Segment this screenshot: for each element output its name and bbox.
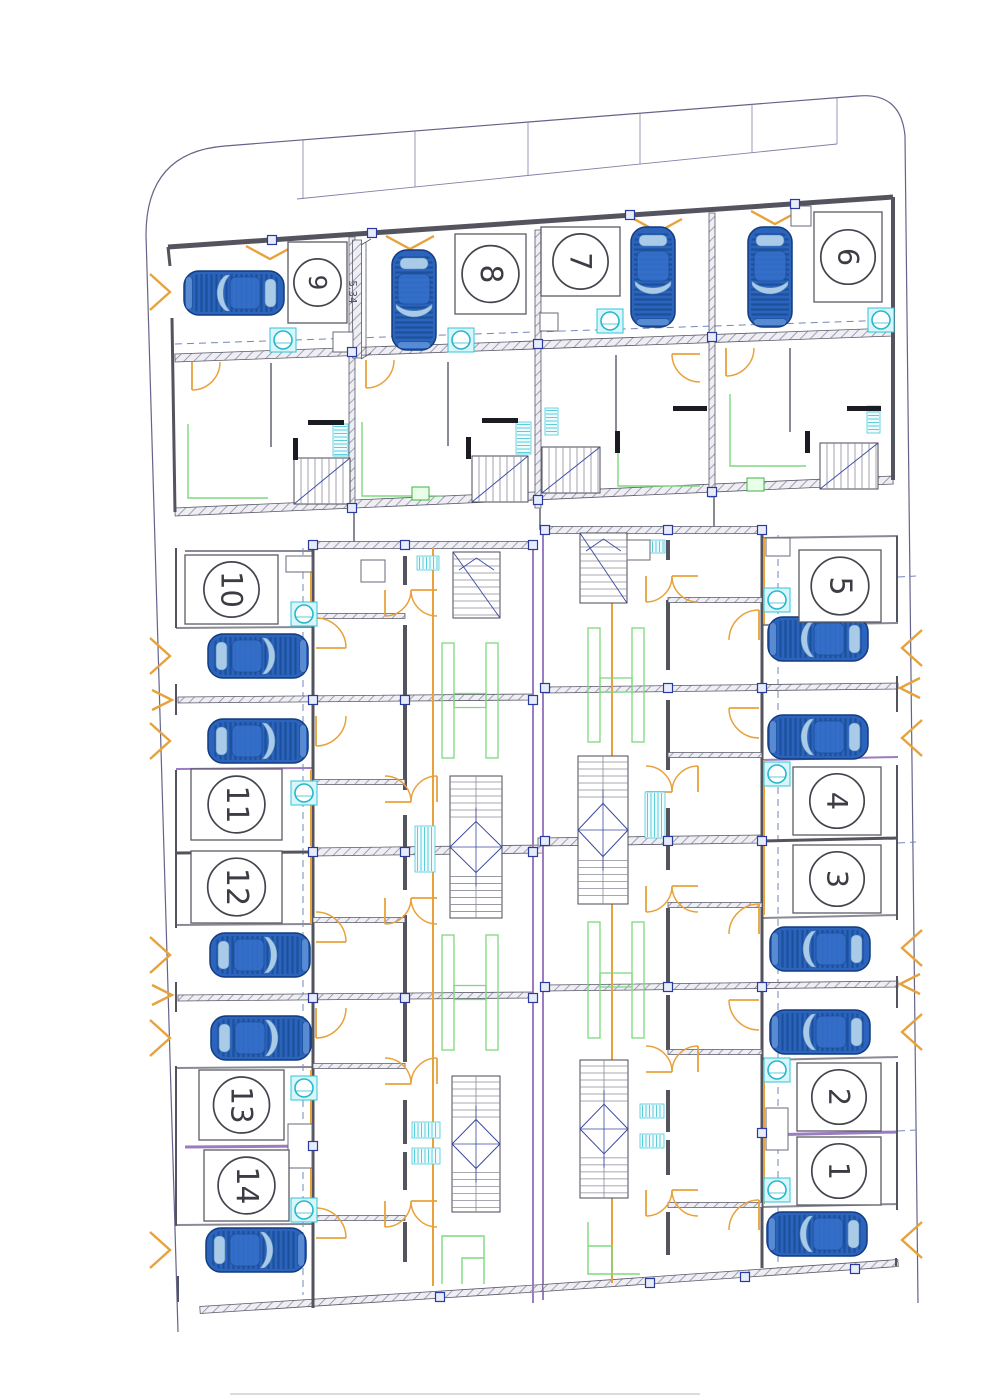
unit-number: 14 [229,1167,264,1205]
door-swing [729,1000,759,1030]
column-icon [268,236,277,245]
door-arc [672,766,698,792]
column-icon [309,696,318,705]
door-swing [729,904,759,934]
column-icon [791,200,800,209]
hatched-wall [200,1285,543,1314]
door-arc [316,1008,346,1038]
column-icon [541,837,550,846]
door-swing [316,1008,346,1038]
column-icon [309,848,318,857]
wardrobe-bar [588,628,600,742]
hatched-wall [535,230,541,508]
parking-entry-chevron [902,1222,922,1258]
column-icon [348,504,357,513]
unit-number: 12 [219,868,254,906]
car-icon [768,617,868,661]
car-icon [767,1212,867,1256]
door-arc [385,590,411,616]
vent-ring [768,765,786,783]
dashed-guide [898,1130,916,1131]
door-swing [729,610,759,640]
storage-box [766,538,790,556]
door-swing [316,1208,346,1238]
unit-number: 8 [473,265,508,284]
parking-entry-chevron [246,246,294,259]
door-swing [366,360,394,388]
column-icon [664,837,673,846]
wall [762,915,898,918]
door-arc [385,1058,411,1084]
door-swing [672,886,698,912]
door-arc [316,618,346,648]
floor-plan-svg: 1234567891011121314 5.34 [0,0,990,1400]
unit-number: 2 [822,1088,856,1106]
parking-entry-chevron [902,630,922,666]
door-arc [385,1201,411,1227]
column-icon [529,994,538,1003]
stairs-layer [294,443,878,1212]
staircase [580,1060,628,1198]
column-icon [708,333,717,342]
parking-entry-chevron [150,1020,170,1056]
staircase [294,458,350,504]
storage-box [766,1108,788,1150]
column-icon [708,488,717,497]
unit-number: 7 [564,252,598,270]
bathroom-fixture [482,418,518,423]
door-arc [729,1000,759,1030]
column-icon [758,1129,767,1138]
parking-entry-chevron [150,1232,170,1268]
hatched-wall [668,598,762,603]
column-icon [309,1142,318,1151]
grille-box [545,408,558,435]
vent-circle-icon [448,328,474,352]
car-icon [770,927,870,971]
hatched-wall [543,1260,898,1292]
car-icon [748,227,792,327]
parking-entry-chevron [152,985,172,1005]
door-arc [729,904,759,934]
door-swing [385,1058,411,1084]
unit-number: 3 [820,870,854,888]
door-swing [726,348,754,376]
column-icon [368,229,377,238]
vent-ring [768,1061,786,1079]
column-icon [741,1273,750,1282]
bathroom-fixture [293,438,298,460]
bathroom-fixture [308,420,344,425]
unit-label: 4 [793,767,881,835]
car-icon [206,1228,306,1272]
wall [762,838,898,841]
vent-ring [452,331,470,349]
wall [176,1067,313,1068]
grille-box [645,792,665,838]
unit-label: 8 [455,234,526,314]
floor-plan-canvas: 1234567891011121314 5.34 [0,0,990,1400]
wardrobe-h-shape [588,628,644,742]
column-icon [541,526,550,535]
kitchen-counter-line [588,1222,640,1274]
door-arc [726,348,754,376]
storage-box [361,560,385,582]
wardrobe-h-shape [588,922,644,1038]
parking-entry-chevron [902,1014,922,1050]
car-icon [768,715,868,759]
dimension-label: 5.34 [346,280,358,304]
car-icon [211,1016,311,1060]
kitchen-counter-line [588,1246,612,1274]
hatched-wall [313,918,405,923]
door-arc [729,610,759,640]
unit-label: 11 [191,769,282,840]
vent-circle-icon [291,602,317,626]
bathroom-fixture [847,406,881,411]
hatched-wall [313,1064,405,1069]
staircase [542,447,600,493]
column-icon [401,696,410,705]
green-label-box [747,478,764,491]
grille-icon [412,1122,440,1138]
vent-circle-icon [868,308,894,332]
wall [172,318,175,512]
vent-circle-icon [270,328,296,352]
vent-ring [295,784,313,802]
hatched-wall [313,1216,405,1221]
unit-label: 2 [797,1063,881,1131]
vent-ring [768,1181,786,1199]
door-arc [672,886,698,912]
vent-ring [768,591,786,609]
column-icon [664,526,673,535]
car-icon [184,271,284,315]
vent-circle-icon [764,762,790,786]
hatched-wall [545,527,762,534]
column-icon [401,994,410,1003]
unit-label: 6 [814,212,882,302]
column-icon [401,541,410,550]
unit-label: 14 [204,1150,289,1221]
grille-icon [412,1148,440,1164]
parking-entry-chevron [900,974,920,994]
bathroom-fixture [805,431,810,453]
vent-ring [601,312,619,330]
bathroom-fixture [673,406,707,411]
unit-number: 1 [822,1162,856,1180]
hatched-wall [545,981,898,991]
staircase [472,456,528,502]
column-icon [436,1293,445,1302]
storage-box [540,313,558,331]
wardrobe-bar [588,922,600,1038]
parking-entry-chevron [150,274,170,310]
unit-number: 5 [823,576,858,595]
wall [168,247,170,266]
door-arc [192,362,220,390]
door-swing [192,362,220,390]
column-icon [646,1279,655,1288]
staircase [452,1076,500,1212]
wall [176,627,313,628]
unit-label: 3 [793,845,881,913]
unit-label: 12 [191,851,282,923]
column-icon [529,541,538,550]
column-icon [309,994,318,1003]
staircase [580,533,627,603]
column-icon [529,696,538,705]
bathroom-fixture [466,437,471,459]
hatched-wall [668,753,762,758]
grille-icon [417,556,439,570]
grille-icon [645,792,665,838]
column-icon [534,340,543,349]
unit-number: 13 [225,1086,259,1123]
door-swing [672,766,698,792]
door-arc [316,1208,346,1238]
column-icon [534,496,543,505]
storage-box [627,540,650,560]
parking-entry-chevron [152,690,172,710]
kitchen-counter-line [462,1258,484,1284]
vent-circle-icon [764,588,790,612]
vent-ring [872,311,890,329]
grille-icon [516,422,531,454]
door-swing [385,1201,411,1227]
unit-number: 4 [820,792,854,810]
column-icon [758,684,767,693]
vent-ring [274,331,292,349]
car-icon [770,1010,870,1054]
column-icon [758,837,767,846]
hatched-wall [545,683,898,693]
sidewalk-edge [297,144,837,199]
column-icon [758,983,767,992]
vent-ring [295,1079,313,1097]
car-icon [210,933,310,977]
staircase [820,443,878,489]
kitchen-counter-line [618,440,700,486]
wall [176,1224,313,1225]
unit-number: 10 [215,571,249,608]
grille-box [415,826,435,872]
column-icon [626,211,635,220]
vent-circle-icon [291,781,317,805]
grille-icon [545,408,558,435]
car-icon [392,250,436,350]
hatched-wall [313,780,405,785]
door-arc [672,354,700,382]
column-icon [529,848,538,857]
storage-box [286,556,312,572]
grille-icon [640,1134,664,1148]
grille-icon [415,826,435,872]
staircase [578,756,628,904]
unit-number: 9 [303,275,332,291]
column-icon [851,1265,860,1274]
vent-circle-icon [764,1058,790,1082]
vent-circle-icon [291,1198,317,1222]
parking-entry-chevron [150,638,170,674]
car-icon [208,634,308,678]
door-swing [672,354,700,382]
column-icon [541,684,550,693]
column-icon [348,348,357,357]
bathroom-fixture [615,431,620,453]
kitchen-counter-line [362,422,442,496]
door-arc [729,708,759,738]
parking-entry-chevron [900,678,920,698]
grille-icon [333,424,348,456]
kitchen-counter-line [188,424,268,498]
green-label-box [412,487,429,500]
unit-label: 5 [799,550,881,622]
door-swing [316,618,346,648]
unit-label: 1 [797,1137,881,1205]
vent-circle-icon [597,309,623,333]
unit-label: 9 [288,242,347,323]
vent-ring [295,605,313,623]
column-icon [758,526,767,535]
column-icon [541,983,550,992]
column-icon [664,983,673,992]
hatched-wall [709,213,715,497]
staircase [450,776,502,918]
hatched-wall [313,542,533,549]
unit-number: 11 [219,786,254,824]
car-icon [208,719,308,763]
column-icon [309,541,318,550]
door-arc [316,912,346,942]
vent-circle-icon [764,1178,790,1202]
door-swing [316,912,346,942]
unit-label: 10 [185,555,278,624]
hatched-wall [178,694,533,703]
door-swing [385,590,411,616]
kitchen-counter-line [730,394,806,466]
unit-label: 13 [199,1070,284,1140]
parking-entry-chevron [386,236,434,249]
unit-number: 6 [831,248,865,266]
car-icon [631,227,675,327]
hatched-wall [668,1203,762,1208]
vent-ring [295,1201,313,1219]
column-icon [401,848,410,857]
dashed-guide [898,576,916,577]
kitchen-counter-line [442,1236,484,1284]
grille-icon [640,1104,664,1118]
wardrobe-bar [632,922,644,1038]
staircase [453,552,500,618]
door-arc [316,716,346,746]
wall [176,924,313,925]
door-swing [316,716,346,746]
parking-entry-chevron [902,930,922,966]
door-arc [366,360,394,388]
wardrobe-bar [632,628,644,742]
grille-box [417,556,439,570]
vent-circle-icon [291,1076,317,1100]
unit-label: 7 [541,227,620,296]
door-swing [729,708,759,738]
column-icon [664,684,673,693]
